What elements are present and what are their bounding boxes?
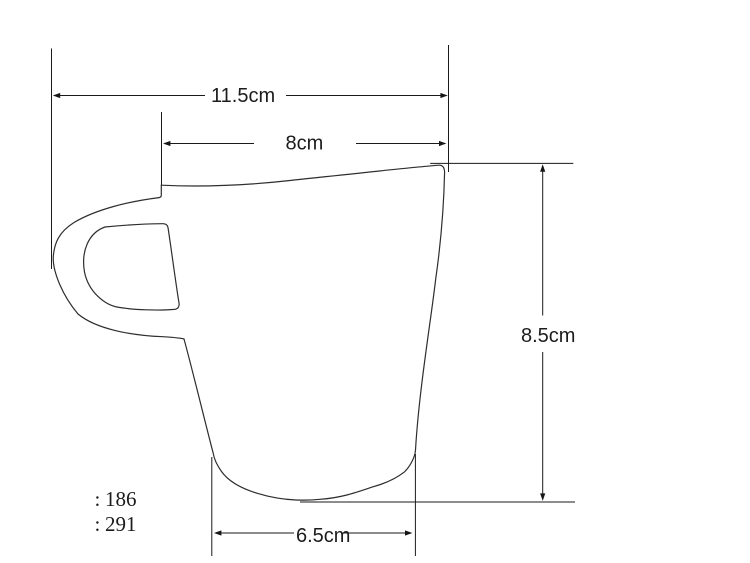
- svg-text:8.5cm: 8.5cm: [521, 325, 575, 347]
- svg-text:11.5cm: 11.5cm: [211, 85, 275, 107]
- svg-text::: :: [95, 487, 101, 511]
- svg-text::: :: [95, 512, 101, 536]
- svg-text:291: 291: [105, 512, 137, 536]
- svg-text:8cm: 8cm: [286, 133, 324, 155]
- svg-text:186: 186: [105, 487, 137, 511]
- svg-text:6.5cm: 6.5cm: [296, 525, 350, 547]
